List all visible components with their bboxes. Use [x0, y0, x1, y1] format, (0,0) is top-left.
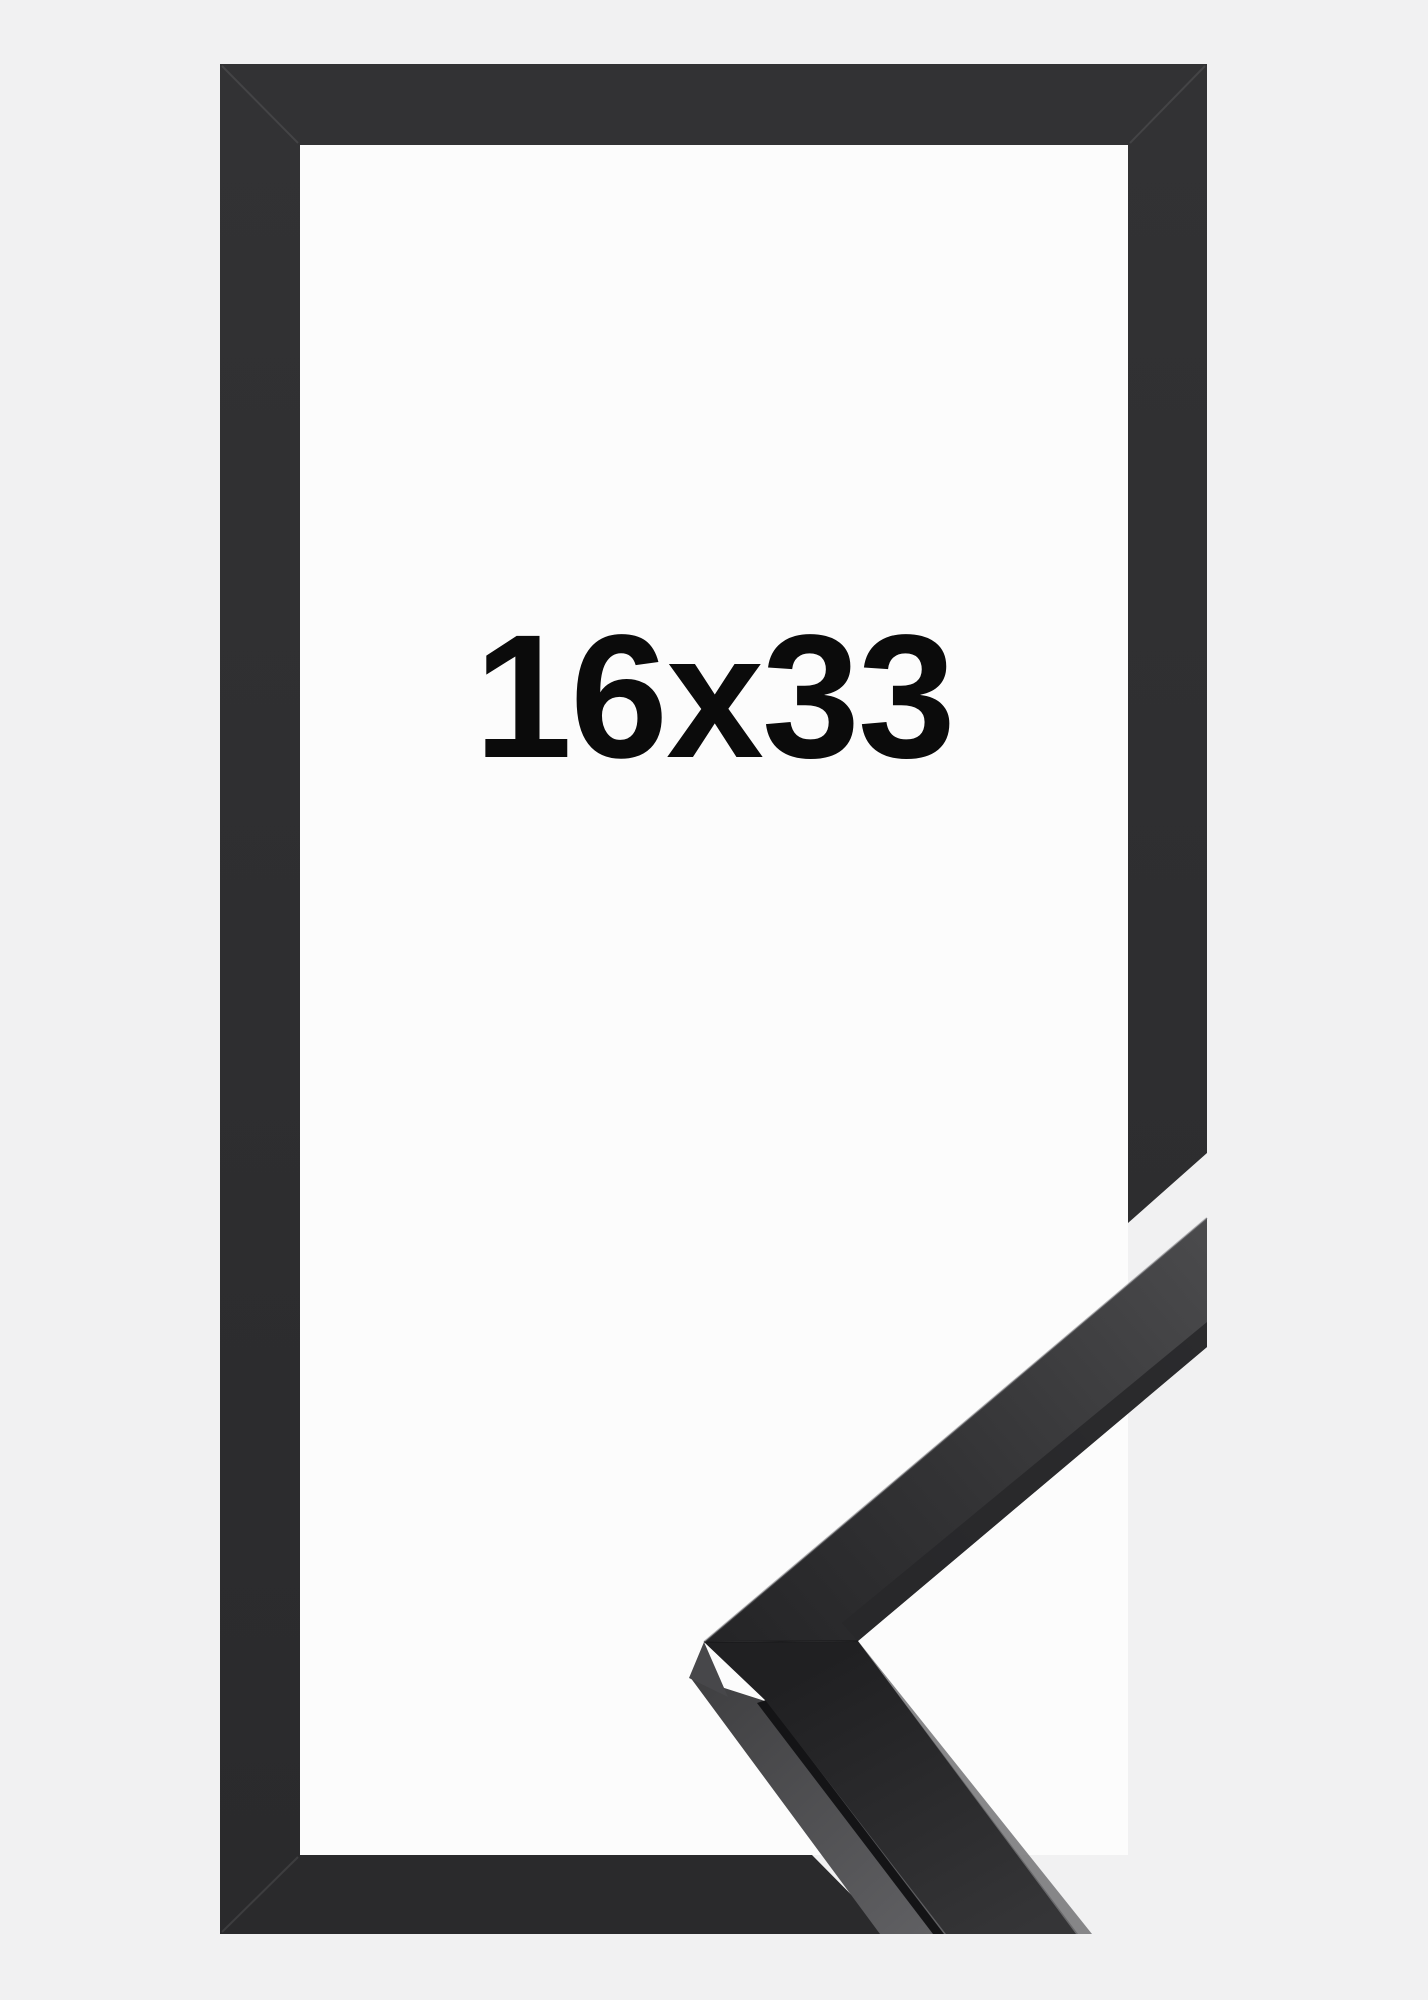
product-image-stage: 16x33	[0, 0, 1428, 2000]
profile-miter-seam	[704, 1641, 858, 1642]
size-label: 16x33	[0, 609, 1428, 785]
frame-product-graphic	[0, 0, 1428, 2000]
frame-inner-mat	[300, 145, 1128, 1855]
